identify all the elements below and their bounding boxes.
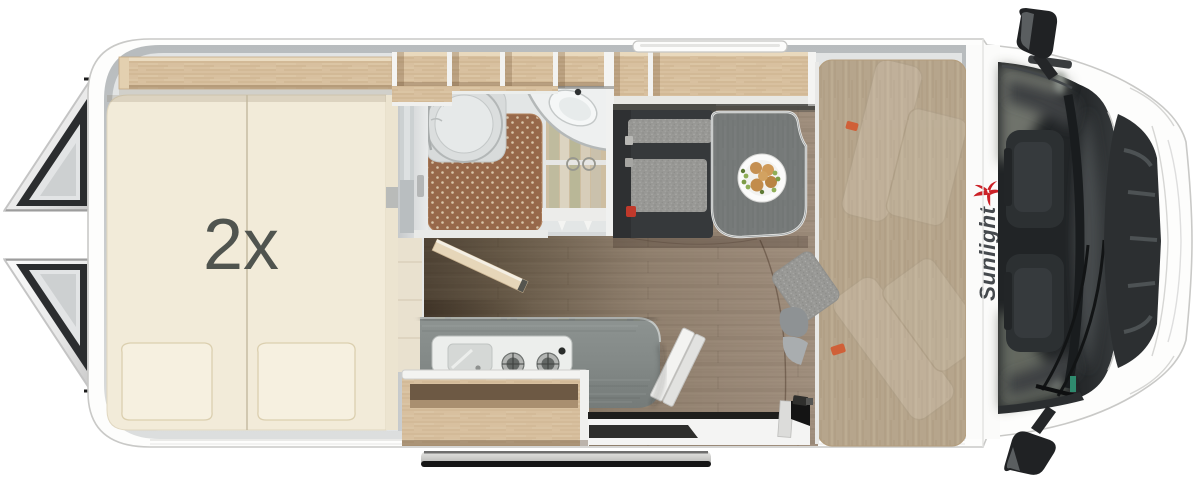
svg-text:2x: 2x <box>203 205 279 285</box>
svg-text:Sunlight: Sunlight <box>975 205 1000 301</box>
